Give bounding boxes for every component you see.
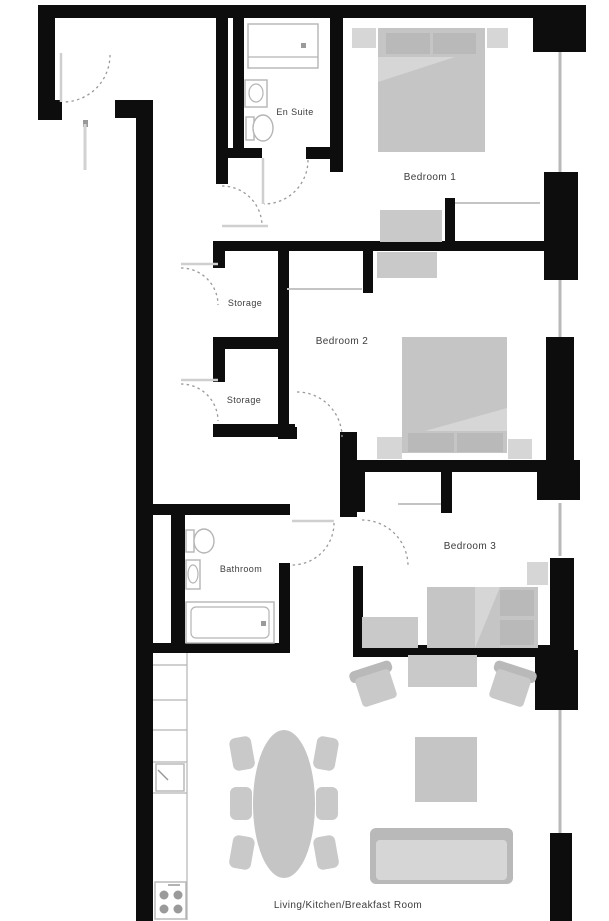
room-label-bedroom-3: Bedroom 3 [444,541,497,552]
wall-pier-block-bed3-living [535,650,578,710]
wall-top [38,5,585,18]
wall-ensuite-right [330,18,343,172]
bedroom2-pillow [408,433,454,452]
bedroom3-door-arc [362,520,408,566]
living-furniture [228,655,538,884]
bedroom3-chest [362,617,418,648]
wall-bedroom1-closet-bar [445,198,455,244]
dining-chair [312,735,339,771]
dining-table [253,730,315,878]
wall-ensuite-left-a [216,18,228,184]
wall-left-main [136,100,153,921]
storage2-door-arc [181,384,218,421]
wall-ensuite-bottom-left [227,148,262,158]
kitchen-hob [155,882,186,919]
armchair-left [348,659,402,709]
dining-chair [228,735,255,771]
dining-chair [228,834,255,870]
bedroom2-door-arc [297,392,342,437]
bedroom1-pillow [386,33,430,54]
wall-bedroom2-left [278,251,289,427]
wall-bathroom-left [171,510,185,653]
bedroom1-pillow [433,33,476,54]
room-label-bedroom-2: Bedroom 2 [316,336,369,347]
wall-bedroom3-closet-bar [441,464,452,513]
wall-storage2-stub-top [213,349,225,382]
bedroom1-nightstand-left [352,28,376,48]
wall-ensuite-left-b [233,18,244,158]
wall-storage1-stub-top [213,251,225,268]
wall-bedroom2-closet-bar [363,250,373,293]
sofa-seat [376,840,507,880]
ensuite-shower-drain [301,43,306,48]
bedroom3-pillow [500,590,534,616]
hob-burner [160,905,169,914]
wall-bathroom-right [279,563,290,653]
room-label-bedroom-1: Bedroom 1 [404,172,457,183]
tv-unit [408,655,477,687]
hob-burner [174,891,183,900]
wall-pier-4 [550,833,572,921]
bedroom2-wardrobe [377,252,437,278]
bathroom-bathtub [186,602,274,643]
ensuite-toilet-bowl [253,115,273,141]
wall-pier-block-bed2-bed3 [537,460,580,500]
wall-pier-1 [544,172,578,280]
room-label-living-kitchen: Living/Kitchen/Breakfast Room [274,900,422,911]
room-label-en-suite: En Suite [276,107,313,117]
bathroom-toilet-bowl [194,529,214,553]
room-label-bathroom: Bathroom [220,564,262,574]
bedroom1-nightstand-right [487,28,508,48]
bedroom3-pillow [500,620,534,645]
wall-pier-2 [546,337,574,460]
wall-ensuite-bottom-right [306,147,330,159]
dining-chair [312,834,339,870]
floor-plan: En Suite Bedroom 1 Storage Bedroom 2 Sto… [0,0,609,921]
wall-storage-divider [213,337,282,349]
armchair-right [484,659,538,709]
hob-burner [160,891,169,900]
wall-pier-3 [550,558,574,652]
ensuite-fixtures [245,24,318,141]
bedroom2-nightstand-right [508,439,532,459]
wall-left-upper [38,5,55,100]
storage1-door-arc [181,268,218,305]
bedroom2-pillow [457,433,503,452]
bedroom1-wardrobe [380,210,442,242]
bathroom-fixtures [186,529,274,643]
bedroom3-nightstand [527,562,548,585]
ensuite-door-arc [264,160,308,204]
wall-bedroom2-left-cap [278,427,297,439]
wall-corner-top-right [533,5,586,52]
bedroom3-furniture [362,562,548,648]
hob-burner [174,905,183,914]
bathroom-door-arc [292,523,334,565]
room-label-storage-1: Storage [228,298,262,308]
dining-chair [230,787,252,820]
wall-bedroom3-left-lower [353,566,363,652]
room-label-storage-2: Storage [227,395,261,405]
wall-entry-step [38,100,62,120]
wall-bedroom3-left-stub [353,472,365,512]
ensuite-shower-tray [248,24,318,68]
wall-bathroom-bottom [153,643,290,653]
bedroom2-nightstand-left [377,437,402,459]
floor-plan-drawing: En Suite Bedroom 1 Storage Bedroom 2 Sto… [0,0,609,921]
hall-door-arc [222,186,262,226]
kitchen-sink [156,764,184,791]
bedroom1-furniture [352,28,508,242]
dining-chair [316,787,338,820]
coffee-table [415,737,477,802]
bathroom-toilet-cistern [186,530,194,552]
wall-bedroom2-bedroom3-divider [355,460,551,472]
kitchen-units [153,653,187,920]
bedroom2-furniture [377,252,532,459]
entry-door-arc [63,55,110,102]
bathroom-bathtub-drain [261,621,266,626]
wall-bedroom1-bedroom2-divider [213,241,545,251]
